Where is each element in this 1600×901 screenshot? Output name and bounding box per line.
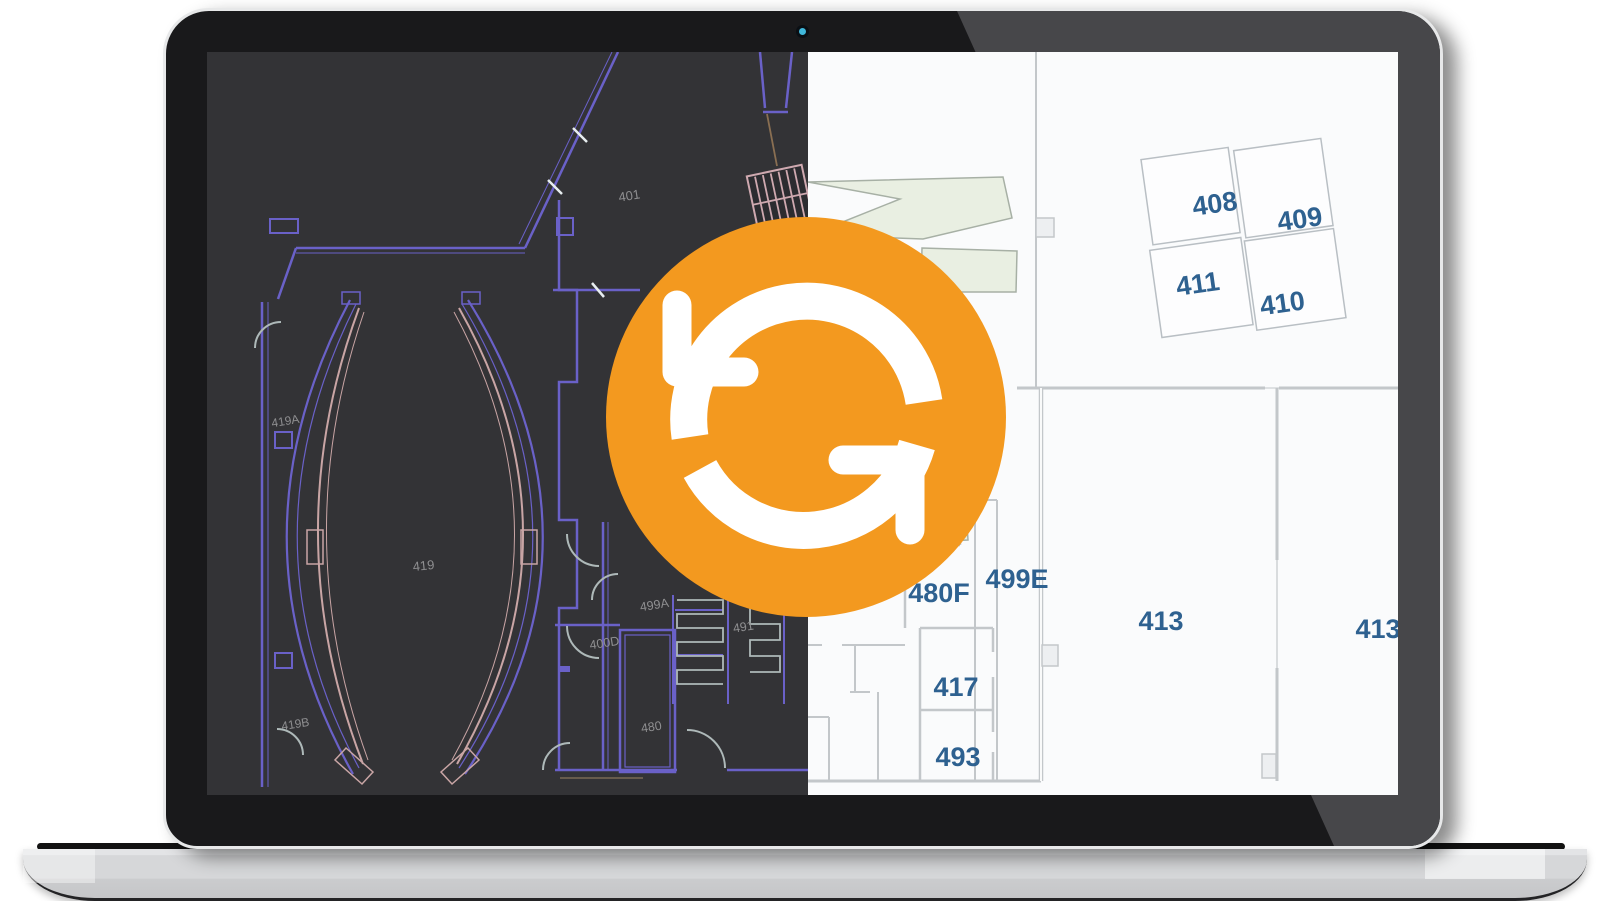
modern-room-cluster: 408 409 411 410 (1137, 134, 1346, 343)
room-label-408: 408 (1190, 186, 1239, 222)
room-label-409: 409 (1275, 201, 1324, 237)
sync-icon (606, 217, 1006, 617)
base-shine-left (23, 849, 95, 883)
webcam-icon (796, 25, 809, 38)
room-label-413: 413 (1138, 606, 1183, 636)
laptop-lid: 401 419A 419 499A 400D 491 480 419B (163, 8, 1443, 849)
webcam-dot (799, 28, 806, 35)
room-label-417: 417 (933, 672, 978, 702)
cad-room-label-419: 419 (412, 557, 435, 574)
room-label-499E: 499E (985, 564, 1048, 594)
room-label-410: 410 (1258, 285, 1307, 321)
base-shine-right (1425, 849, 1545, 879)
room-label-413-right: 413 (1355, 614, 1398, 644)
laptop-screen: 401 419A 419 499A 400D 491 480 419B (207, 52, 1398, 795)
floorplan-graphic: 401 419A 419 499A 400D 491 480 419B (207, 52, 1398, 795)
room-label-493: 493 (935, 742, 980, 772)
room-label-411: 411 (1174, 266, 1221, 302)
laptop-base (23, 849, 1587, 901)
sync-icon-circle (606, 217, 1006, 617)
